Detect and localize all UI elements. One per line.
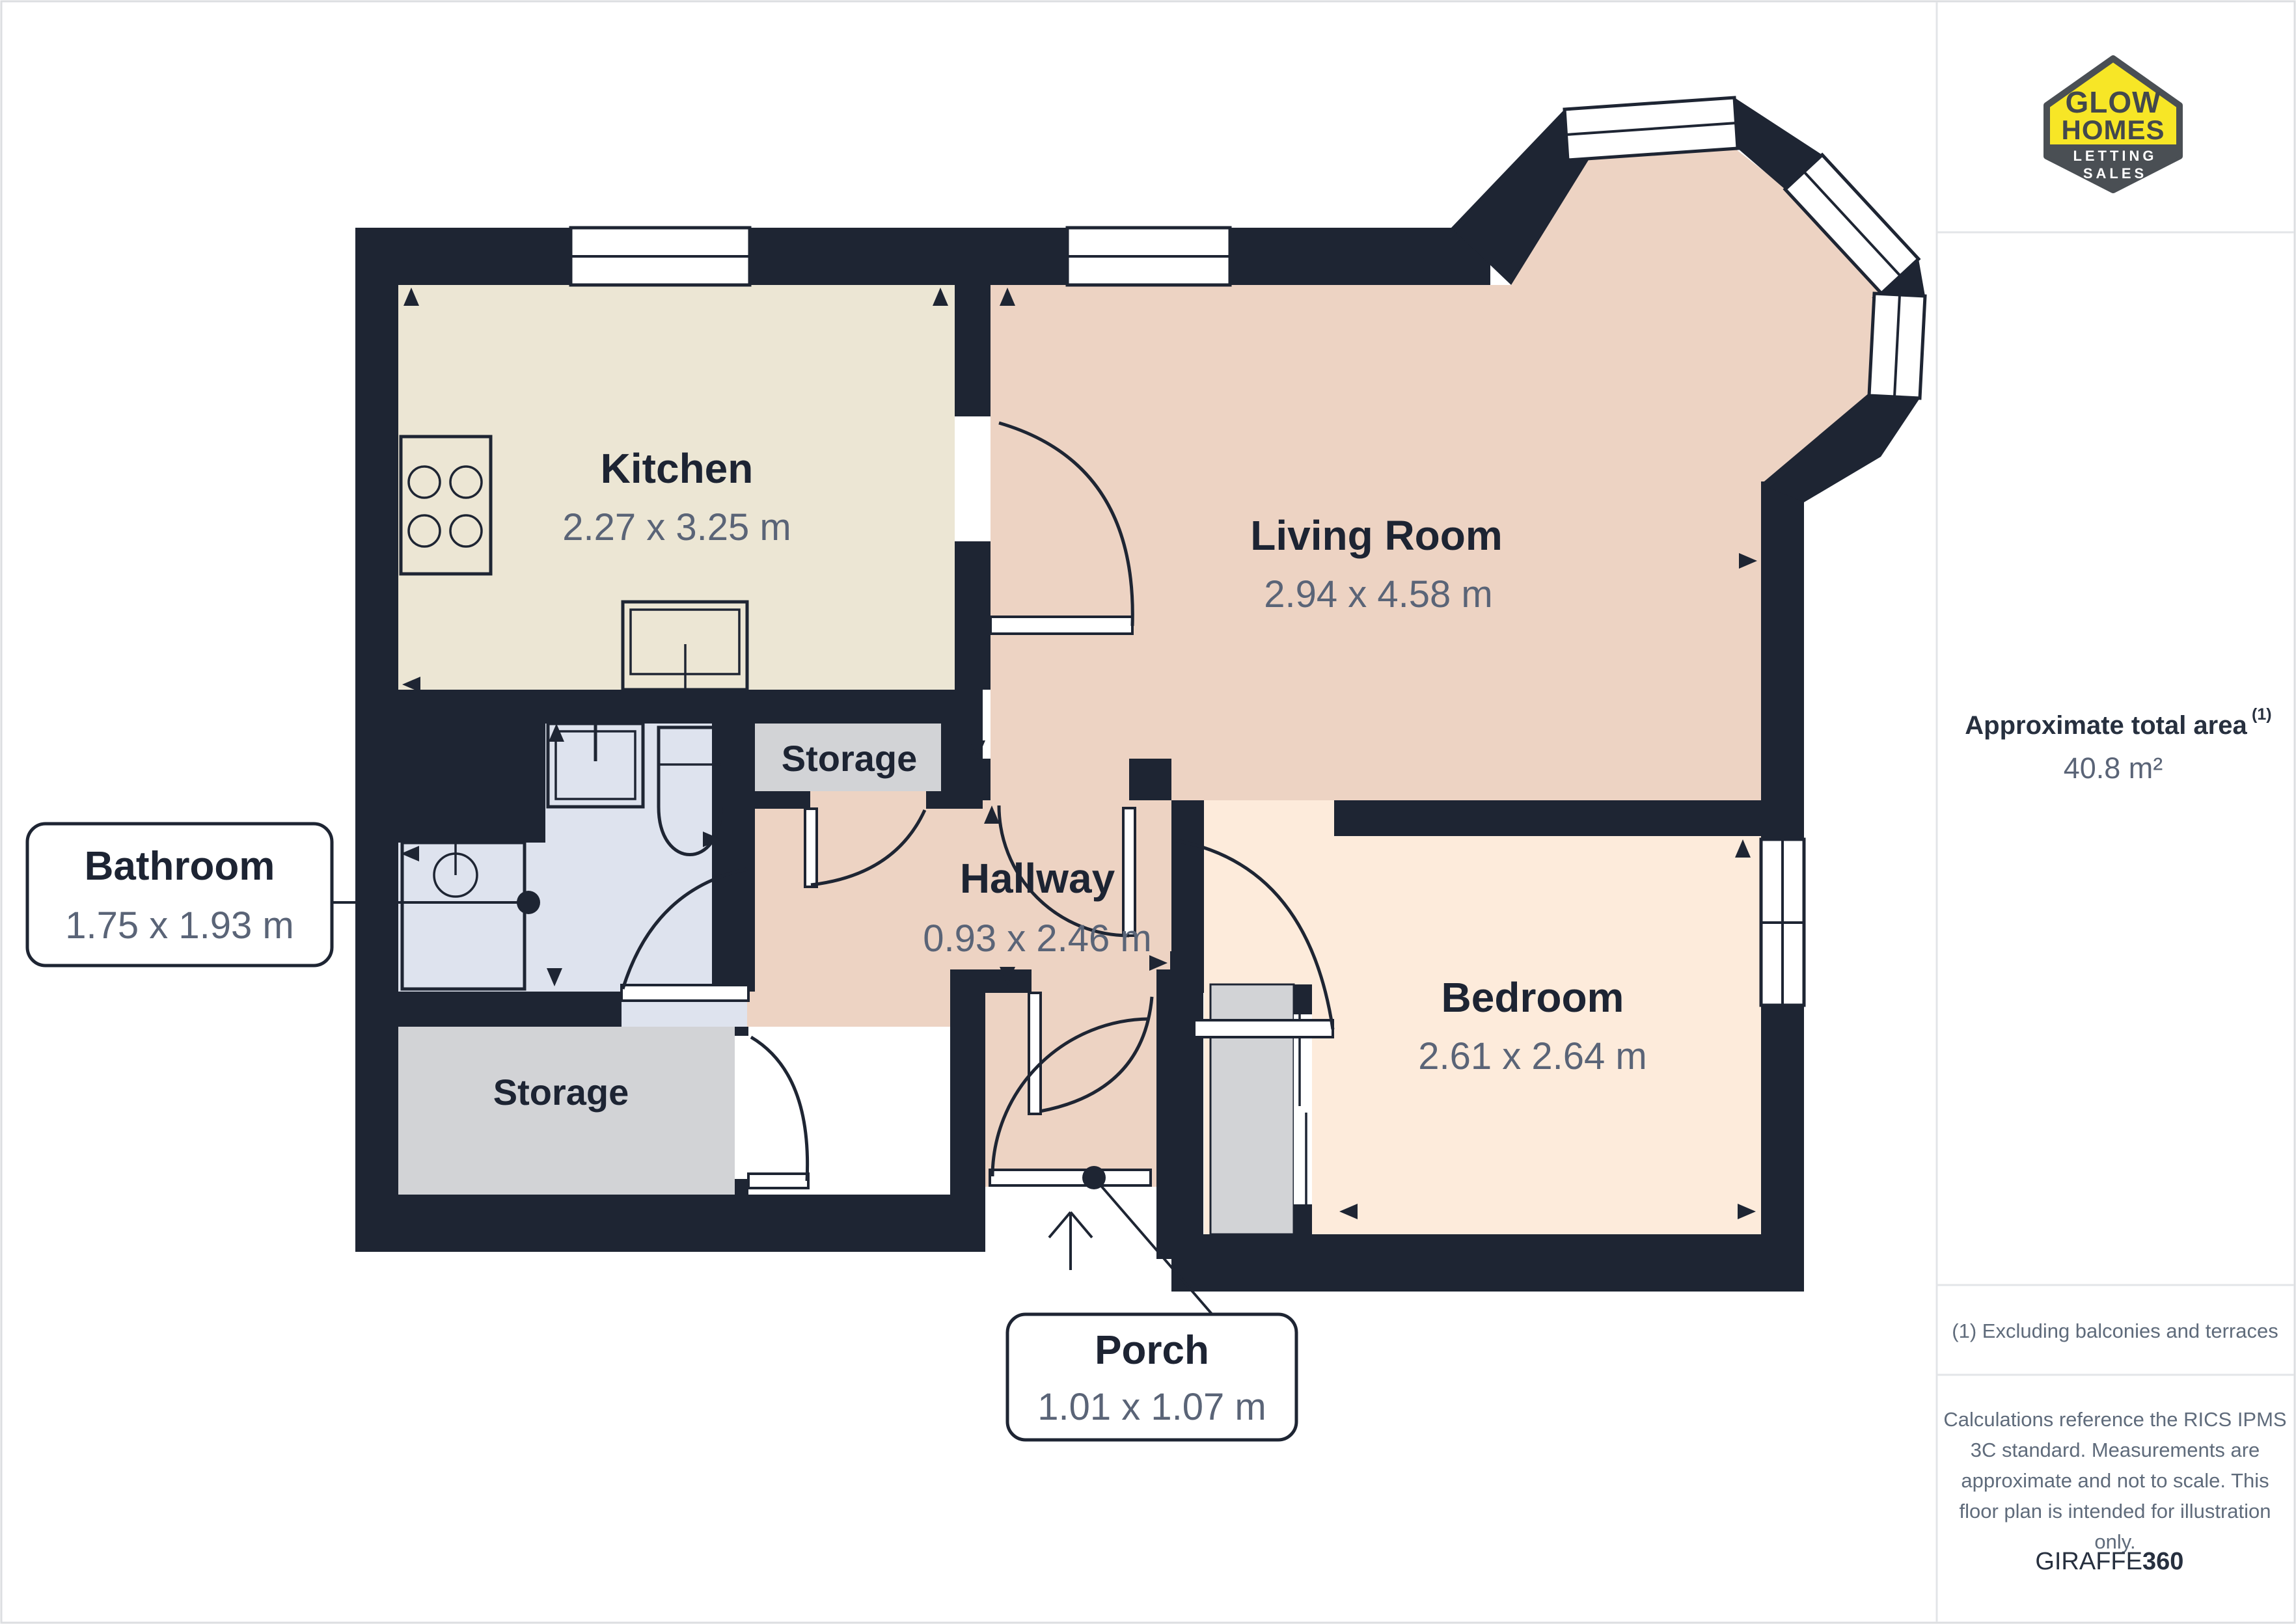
wall	[950, 993, 985, 1211]
bedroom-window	[1761, 839, 1804, 1005]
bedroom-dims: 2.61 x 2.64 m	[1418, 1035, 1647, 1077]
brand-name: GIRAFFE	[2035, 1548, 2142, 1575]
bathroom-leader-dot	[517, 891, 540, 914]
disclaimer-line: floor plan is intended for illustration	[1959, 1500, 2271, 1522]
wall	[735, 1027, 748, 1036]
kitchen-label: Kitchen	[601, 445, 754, 492]
logo-text-letting: LETTING	[2073, 148, 2157, 164]
bathroom-callout-dims: 1.75 x 1.93 m	[65, 904, 294, 947]
wall	[1334, 800, 1804, 836]
wall	[355, 992, 622, 1027]
giraffe360-brand: GIRAFFE 360	[2035, 1548, 2183, 1575]
disclaimer-line: 3C standard. Measurements are	[1971, 1439, 2260, 1461]
living-room-window	[1067, 228, 1230, 285]
hall-porch-opening	[1032, 969, 1156, 993]
area-label: Approximate total area	[1965, 711, 2247, 740]
area-value: 40.8 m²	[2064, 751, 2163, 785]
living-hall-opening	[991, 759, 1129, 800]
living-room-dims: 2.94 x 4.58 m	[1264, 573, 1492, 616]
porch-callout: Porch 1.01 x 1.07 m	[1007, 1314, 1296, 1440]
wall	[355, 1195, 985, 1252]
bathroom-callout-label: Bathroom	[85, 844, 275, 889]
wall	[1129, 759, 1171, 800]
footnote: (1) Excluding balconies and terraces	[1952, 1319, 2278, 1342]
storage-upper-door-opening	[810, 791, 926, 809]
porch-callout-dims: 1.01 x 1.07 m	[1037, 1386, 1266, 1428]
wall	[1156, 969, 1203, 1259]
wall	[983, 759, 991, 800]
porch-floor	[985, 993, 1156, 1187]
kitchen-dims: 2.27 x 3.25 m	[562, 506, 791, 548]
wall	[950, 969, 1032, 993]
disclaimer-line: Calculations reference the RICS IPMS	[1943, 1408, 2286, 1431]
bedroom-label: Bedroom	[1442, 974, 1624, 1021]
wall	[1171, 800, 1204, 836]
wall	[735, 1179, 748, 1195]
floorplan-page: Bathroom 1.75 x 1.93 m Porch 1.01 x 1.07…	[0, 0, 2296, 1624]
wall	[355, 690, 545, 843]
bathroom-callout: Bathroom 1.75 x 1.93 m	[27, 824, 332, 966]
hallway-label: Hallway	[960, 855, 1115, 902]
brand-suffix: 360	[2142, 1548, 2183, 1575]
bedroom-door-opening	[1204, 800, 1334, 836]
wall	[712, 716, 755, 992]
wall	[355, 228, 1490, 285]
area-label-superscript: (1)	[2252, 705, 2272, 724]
wall	[926, 791, 983, 809]
wall	[955, 541, 991, 690]
wall	[1761, 1005, 1804, 1234]
porch-callout-label: Porch	[1095, 1328, 1209, 1373]
disclaimer-line: approximate and not to scale. This	[1961, 1469, 2269, 1492]
porch-leader-dot	[1082, 1166, 1106, 1189]
wall	[755, 791, 810, 809]
kitchen-window	[571, 228, 750, 285]
wall	[1761, 481, 1804, 839]
living-room-label: Living Room	[1250, 512, 1503, 559]
wall	[1171, 836, 1204, 993]
wall	[955, 285, 991, 416]
hallway-dims: 0.93 x 2.46 m	[923, 917, 1151, 960]
logo-text-sales: SALES	[2083, 165, 2147, 182]
storage-lower-label: Storage	[493, 1072, 629, 1113]
logo-text-homes: HOMES	[2061, 115, 2165, 145]
storage-upper-label: Storage	[782, 738, 918, 779]
wall	[1171, 1234, 1804, 1292]
